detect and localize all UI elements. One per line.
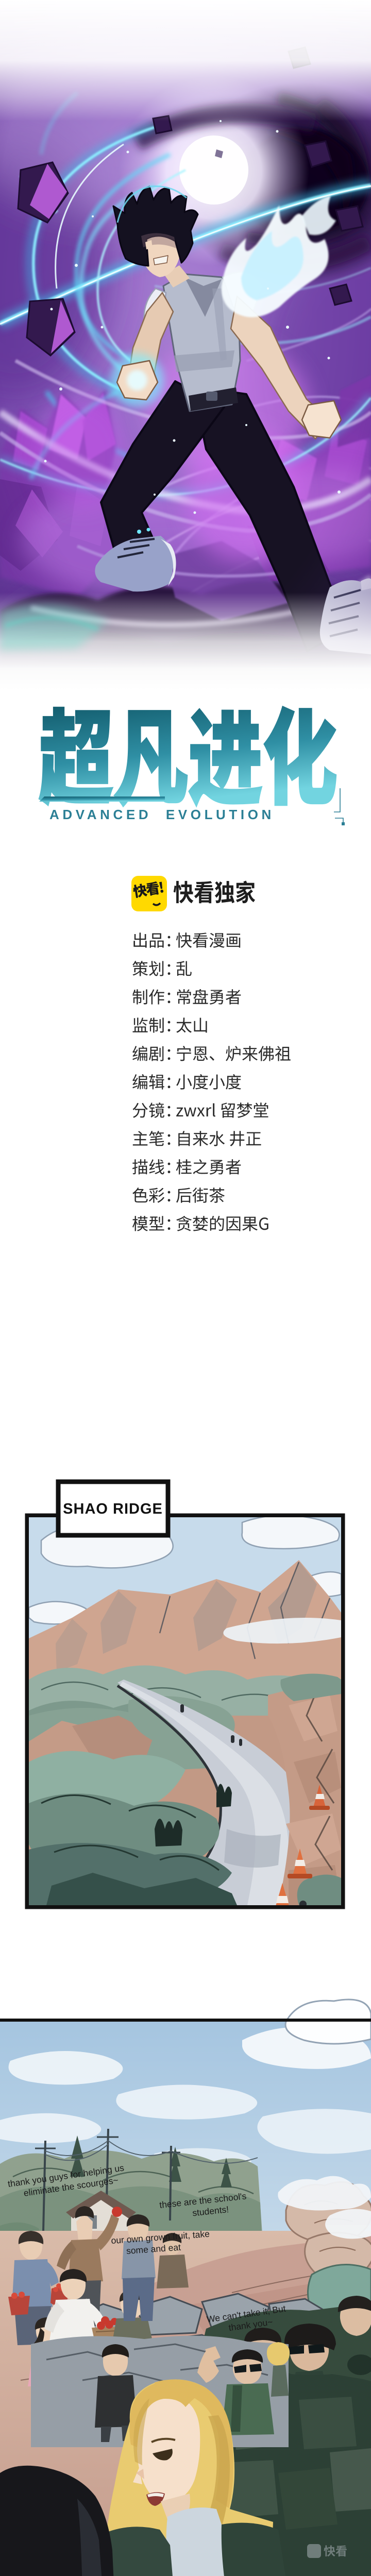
svg-text:SHAO RIDGE: SHAO RIDGE	[63, 1501, 163, 1517]
svg-text:ADVANCED EVOLUTION: ADVANCED EVOLUTION	[49, 807, 275, 822]
